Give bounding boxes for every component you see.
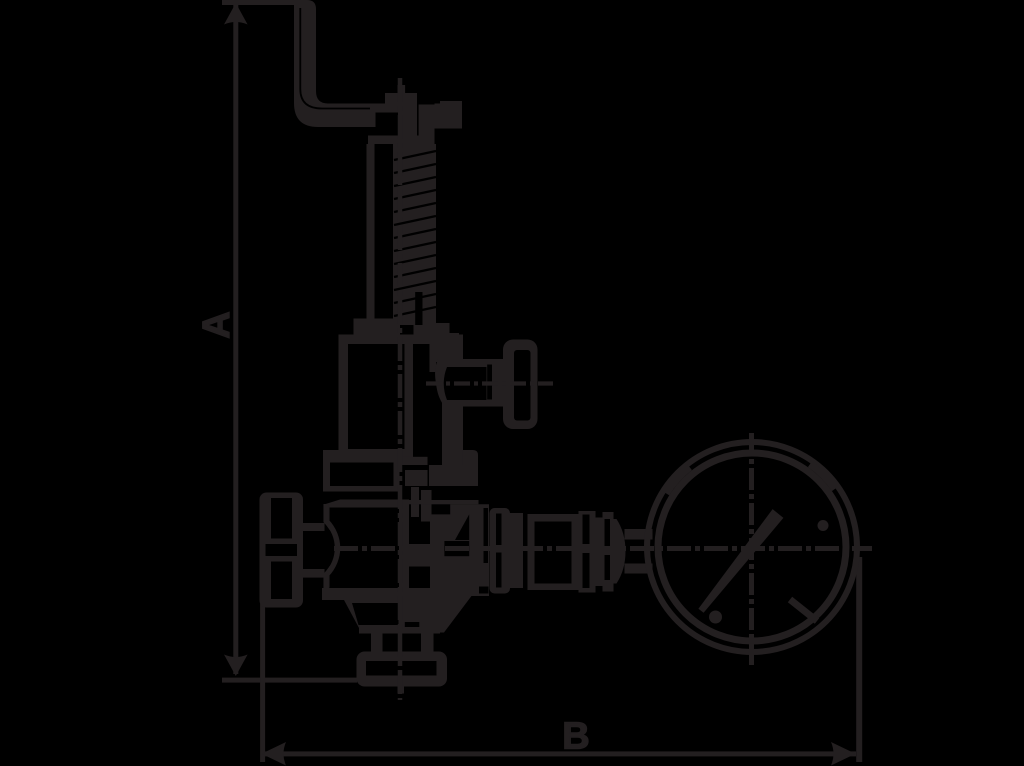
svg-text:B: B [562,716,589,758]
svg-text:A: A [196,311,238,338]
